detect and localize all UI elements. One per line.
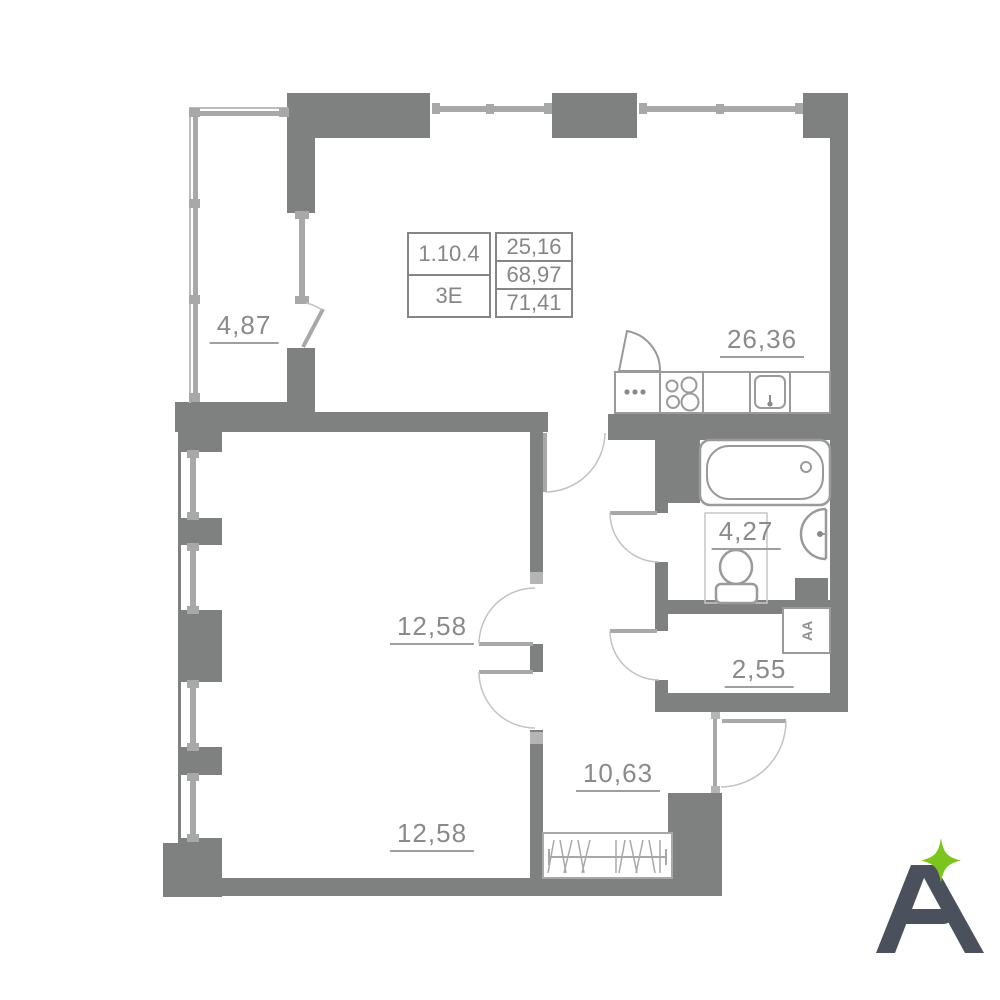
washing-machine-icon: AA	[799, 621, 815, 641]
wall-hall-bedrooms-lower	[530, 730, 543, 878]
toilet-tank	[716, 584, 757, 603]
wall-hall-bedrooms-middle	[530, 644, 543, 672]
wall-right	[830, 93, 848, 712]
storage-door-swing	[610, 631, 659, 680]
wall-kitchen-bathroom	[608, 414, 848, 440]
area-living: 25,16	[497, 234, 571, 260]
bathroom-door-swing	[610, 513, 659, 562]
cabinet-door-swing	[619, 331, 660, 371]
door-jamb	[711, 712, 720, 719]
unit-areas-box: 25,16 68,97 71,41	[495, 232, 573, 318]
wardrobe	[543, 833, 672, 878]
entrance-door-swing	[721, 721, 786, 787]
room-label-storage: 2,55	[725, 656, 794, 688]
floor-plan-page: AA	[0, 0, 1000, 1000]
counter-section	[703, 372, 750, 413]
unit-info-table: 1.10.4 3Е 25,16 68,97 71,41	[407, 232, 573, 318]
ventilation-shaft	[663, 438, 700, 503]
unit-id-box: 1.10.4 3Е	[407, 232, 491, 318]
area-without-balcony: 68,97	[497, 260, 571, 288]
wall-balcony-right-upper	[287, 93, 315, 213]
burner	[667, 381, 678, 392]
wall-storage-bottom	[655, 693, 848, 712]
area-total: 71,41	[497, 288, 571, 316]
wall-top-middle	[552, 93, 637, 138]
wall-living-bottom	[222, 412, 548, 432]
wall-hall-bathroom-middle	[655, 562, 668, 631]
bathroom-shaft-block	[795, 578, 828, 603]
counter-section	[790, 372, 830, 413]
unit-number: 1.10.4	[409, 234, 489, 274]
room-label-bedroom-2: 12,58	[390, 820, 474, 852]
door-jamb	[530, 572, 543, 584]
bedroom2-door-swing	[479, 672, 535, 728]
burner	[682, 378, 697, 393]
door-jamb	[711, 786, 720, 793]
room-label-kitchen-living: 26,36	[720, 326, 804, 358]
bathtub	[700, 440, 830, 505]
wall-hall-bedrooms-upper	[530, 432, 543, 572]
window-living-balcony	[295, 211, 309, 304]
room-label-balcony: 4,87	[210, 312, 279, 344]
balcony-door-swing	[306, 303, 322, 310]
developer-logo	[876, 838, 984, 953]
door-jamb	[530, 732, 543, 744]
burner	[682, 394, 699, 411]
balcony-door-leaf	[303, 309, 323, 347]
toilet-bowl	[720, 550, 752, 584]
floor-plan-drawing: AA	[0, 0, 1000, 1000]
burner	[667, 396, 679, 408]
unit-type: 3Е	[409, 274, 489, 316]
balcony-glazing	[189, 107, 289, 403]
wall-hall-corner-block	[668, 793, 722, 890]
living-room-door-swing	[545, 433, 605, 492]
washing-machine: AA	[783, 608, 830, 653]
room-label-bathroom: 4,27	[712, 518, 781, 550]
wall-bottom	[175, 878, 722, 896]
room-label-bedroom-1: 12,58	[390, 613, 474, 645]
bedroom1-door-swing	[479, 588, 535, 644]
room-label-hallway: 10,63	[576, 760, 660, 792]
